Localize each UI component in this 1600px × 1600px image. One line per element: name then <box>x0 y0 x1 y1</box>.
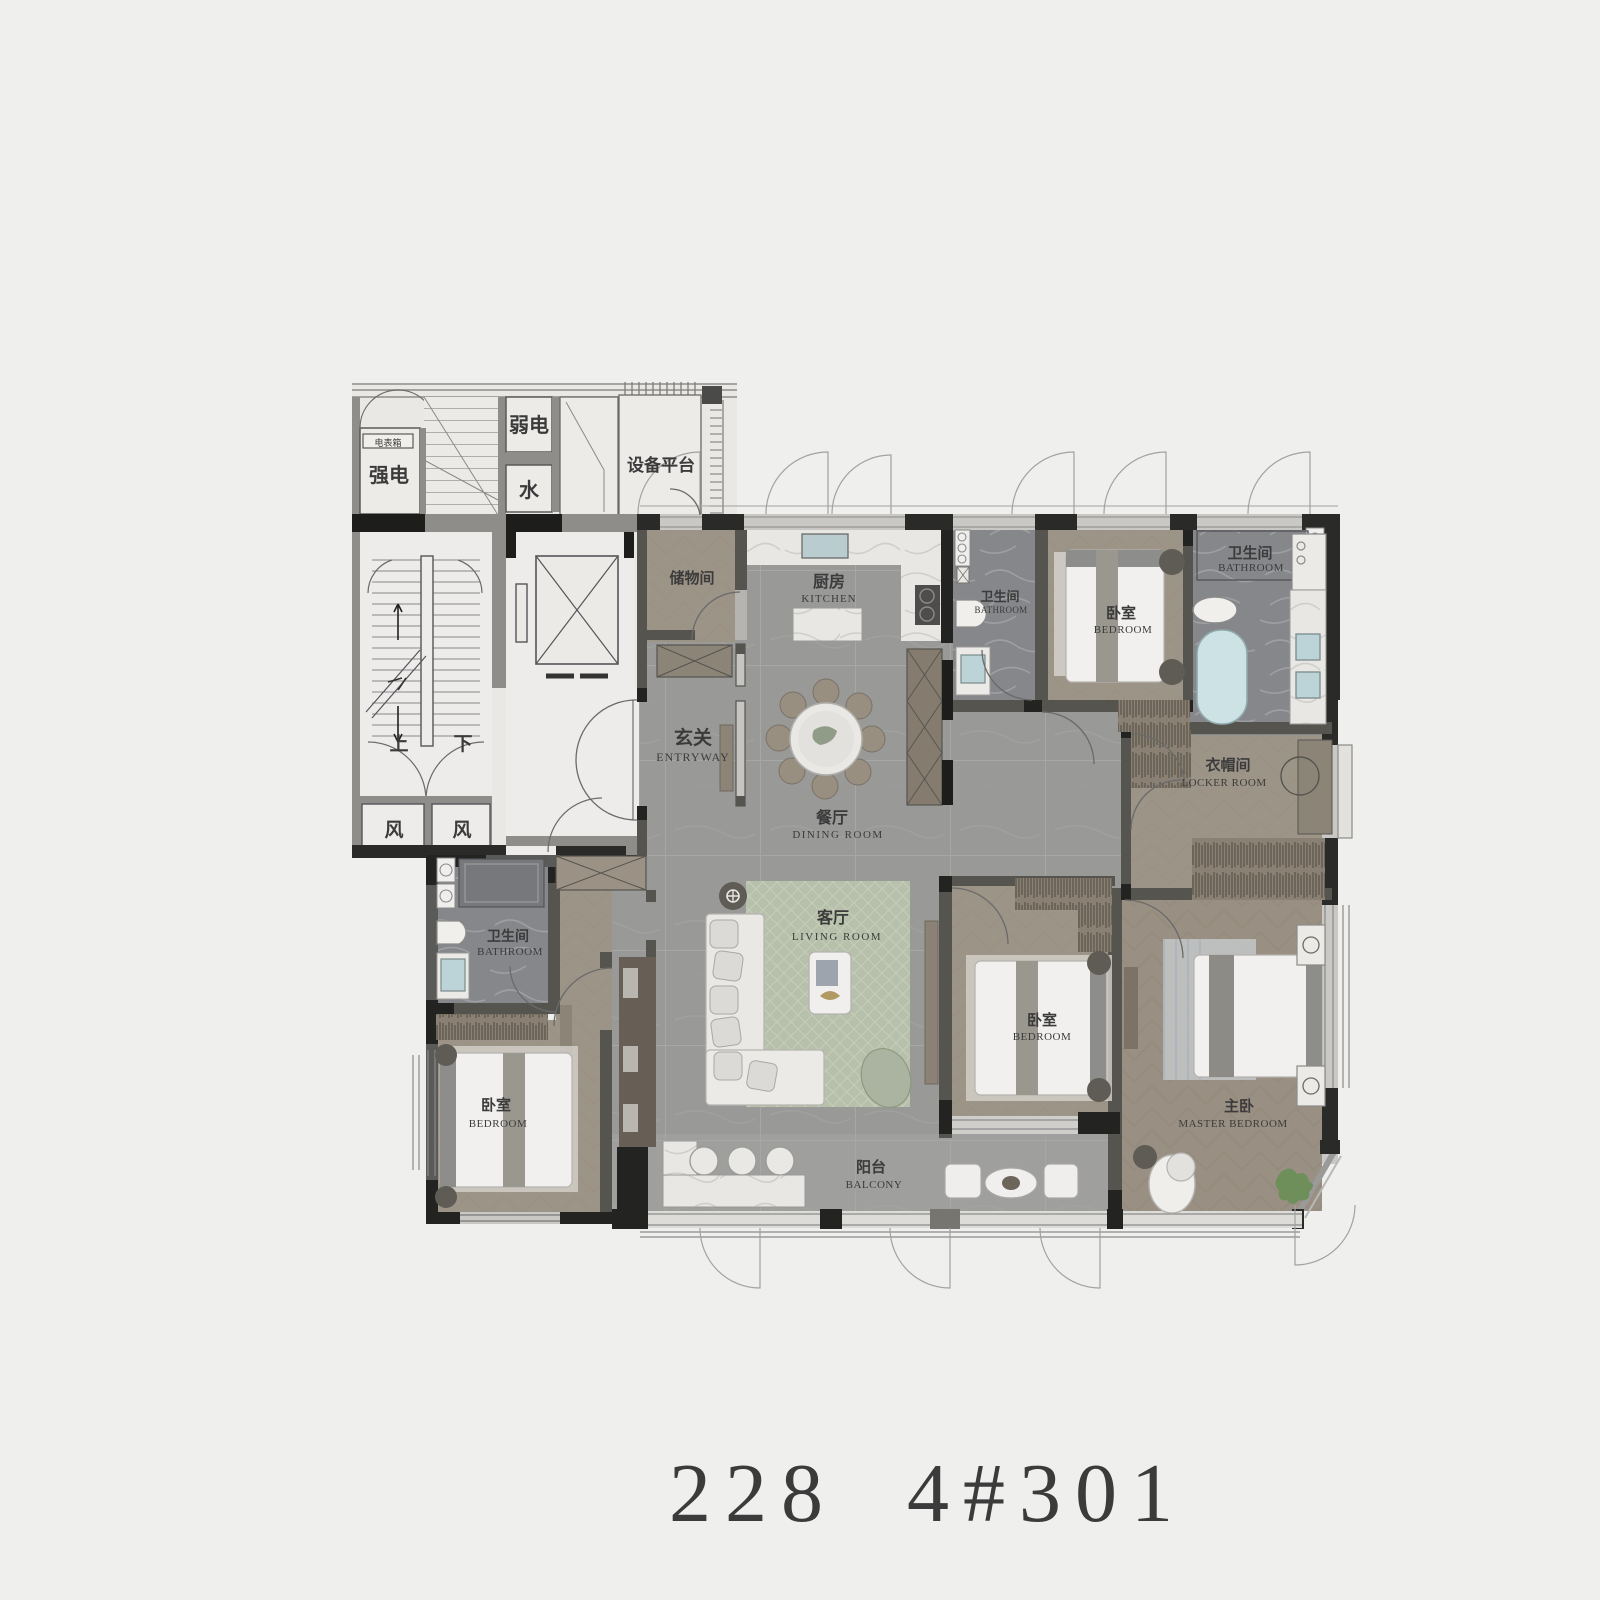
svg-text:玄关: 玄关 <box>674 726 712 749</box>
svg-text:储物间: 储物间 <box>669 569 714 587</box>
svg-text:4#301: 4#301 <box>907 1447 1187 1540</box>
svg-text:风: 风 <box>452 819 471 841</box>
svg-text:强电: 强电 <box>369 464 409 487</box>
svg-text:BEDROOM: BEDROOM <box>1013 1031 1072 1043</box>
svg-text:BEDROOM: BEDROOM <box>469 1118 528 1130</box>
svg-text:阳台: 阳台 <box>856 1158 886 1176</box>
svg-text:MASTER BEDROOM: MASTER BEDROOM <box>1178 1118 1287 1130</box>
svg-text:228: 228 <box>669 1447 837 1540</box>
svg-text:餐厅: 餐厅 <box>815 808 848 827</box>
svg-text:主卧: 主卧 <box>1224 1097 1254 1115</box>
svg-text:LOCKER ROOM: LOCKER ROOM <box>1181 777 1266 789</box>
svg-text:衣帽间: 衣帽间 <box>1205 756 1250 774</box>
svg-text:ENTRYWAY: ENTRYWAY <box>656 750 730 764</box>
svg-text:卫生间: 卫生间 <box>1227 544 1272 562</box>
svg-text:BATHROOM: BATHROOM <box>975 605 1028 615</box>
svg-text:LIVING ROOM: LIVING ROOM <box>792 931 882 943</box>
svg-text:卧室: 卧室 <box>1027 1011 1057 1029</box>
svg-text:下: 下 <box>453 734 472 755</box>
svg-text:水: 水 <box>519 479 540 502</box>
svg-text:BEDROOM: BEDROOM <box>1094 624 1153 636</box>
svg-text:卧室: 卧室 <box>481 1096 511 1114</box>
svg-text:厨房: 厨房 <box>813 572 845 591</box>
svg-text:电表箱: 电表箱 <box>374 437 401 448</box>
svg-text:BALCONY: BALCONY <box>846 1179 903 1191</box>
svg-text:BATHROOM: BATHROOM <box>1218 562 1284 574</box>
svg-text:客厅: 客厅 <box>817 908 849 927</box>
svg-text:风: 风 <box>384 819 403 841</box>
svg-text:设备平台: 设备平台 <box>627 455 695 475</box>
svg-text:上: 上 <box>389 733 408 755</box>
svg-text:KITCHEN: KITCHEN <box>801 593 856 605</box>
svg-text:DINING ROOM: DINING ROOM <box>792 829 883 841</box>
svg-text:卫生间: 卫生间 <box>487 928 529 945</box>
svg-text:卫生间: 卫生间 <box>980 589 1019 604</box>
svg-text:BATHROOM: BATHROOM <box>477 946 543 958</box>
svg-text:卧室: 卧室 <box>1106 604 1136 622</box>
svg-text:弱电: 弱电 <box>509 414 549 437</box>
